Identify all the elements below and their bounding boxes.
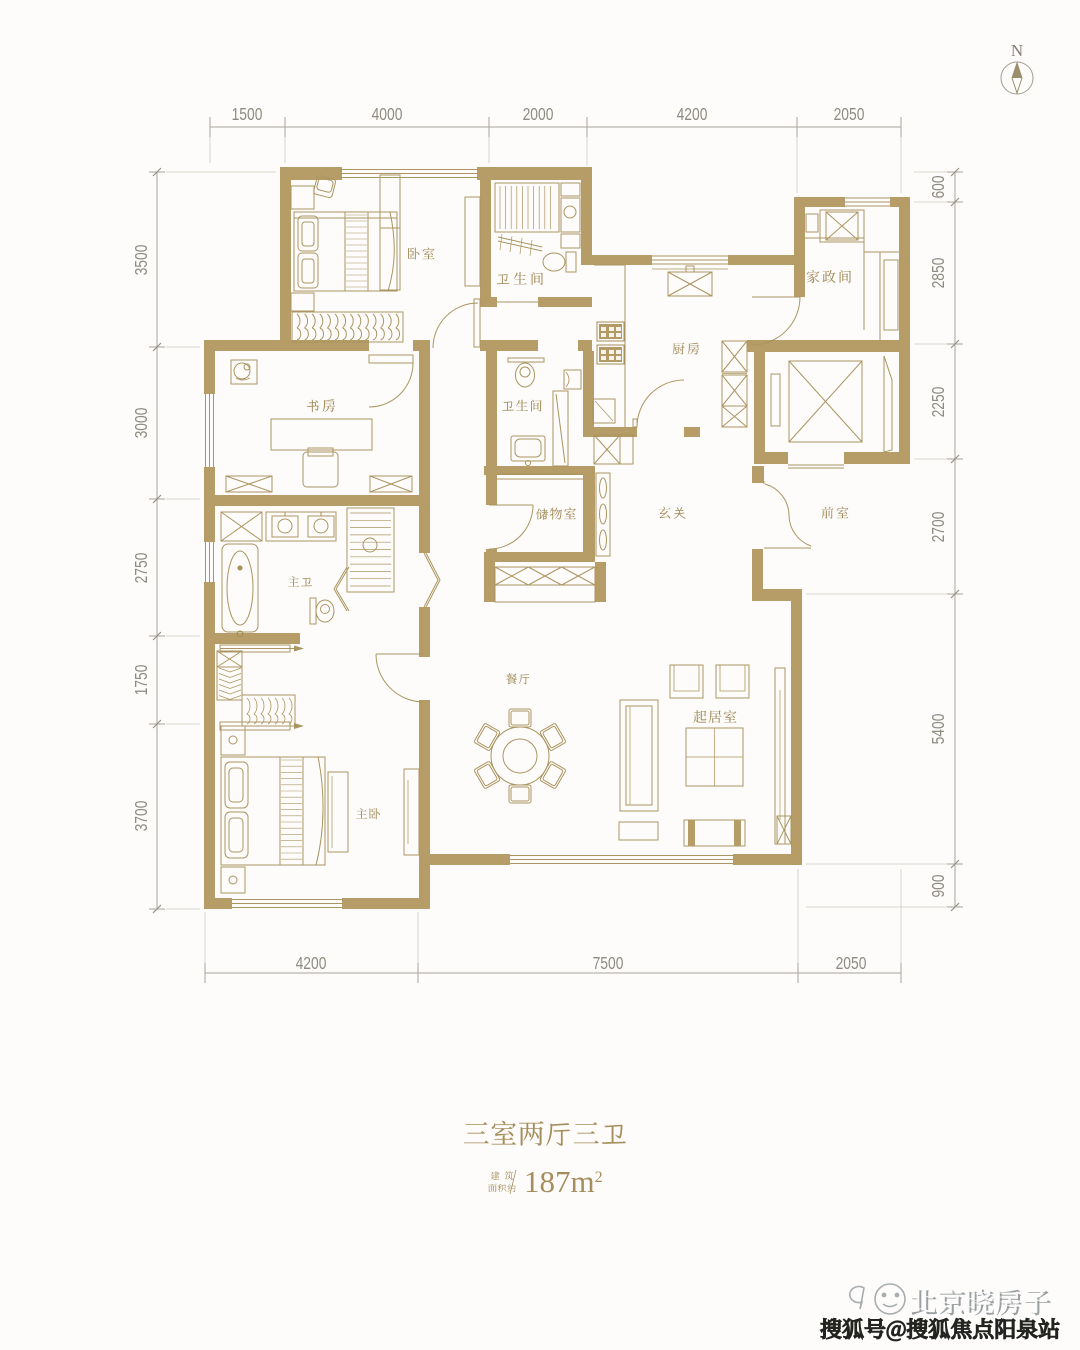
svg-text:2850: 2850	[928, 257, 948, 288]
svg-text:4000: 4000	[372, 104, 403, 124]
svg-text:4200: 4200	[677, 104, 708, 124]
svg-text:2750: 2750	[131, 552, 151, 583]
svg-text:3500: 3500	[131, 244, 151, 275]
svg-text:2050: 2050	[834, 104, 865, 124]
svg-text:3000: 3000	[131, 407, 151, 438]
svg-text:600: 600	[928, 175, 948, 198]
svg-text:2000: 2000	[523, 104, 554, 124]
svg-text:2700: 2700	[928, 511, 948, 542]
svg-text:4200: 4200	[296, 953, 327, 973]
svg-text:900: 900	[928, 874, 948, 897]
svg-text:3700: 3700	[131, 800, 151, 831]
svg-text:N: N	[1011, 41, 1023, 60]
svg-text:1750: 1750	[131, 664, 151, 695]
svg-text:7500: 7500	[593, 953, 624, 973]
svg-text:5400: 5400	[928, 713, 948, 744]
svg-text:2250: 2250	[928, 386, 948, 417]
svg-text:187m2: 187m2	[524, 1164, 603, 1199]
svg-text:1500: 1500	[232, 104, 263, 124]
svg-text:2050: 2050	[836, 953, 867, 973]
